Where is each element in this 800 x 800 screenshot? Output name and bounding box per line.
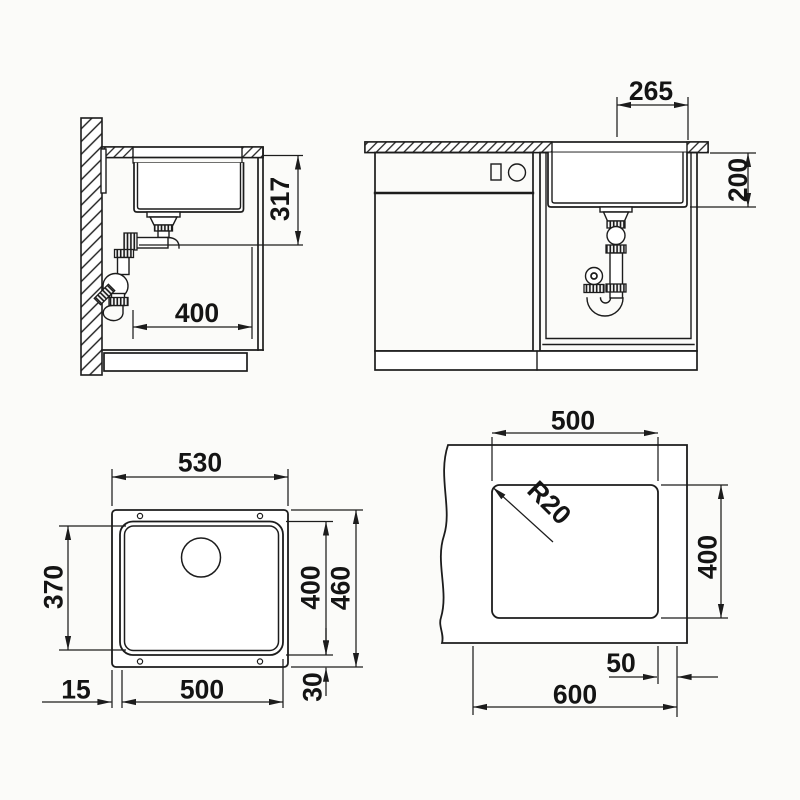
- drain-strainer: [147, 212, 180, 238]
- countertop-plan: [440, 445, 687, 643]
- dim-label-530: 530: [178, 448, 222, 478]
- dim-label-15: 15: [61, 675, 90, 705]
- dim-label-200: 200: [723, 158, 753, 202]
- dimension-15: 15: [42, 670, 122, 708]
- installation-drawing-page: 317 400: [0, 0, 800, 800]
- dim-label-500-cutout: 500: [551, 406, 595, 436]
- control-rect-icon: [491, 164, 501, 180]
- dimension-50: 50: [606, 646, 718, 717]
- dimension-400-side: 400: [133, 247, 252, 339]
- wall-batten: [101, 149, 106, 193]
- countertop-hatch-left2: [365, 142, 552, 153]
- dim-label-460: 460: [326, 566, 356, 610]
- plinth: [104, 353, 247, 371]
- p-trap: [584, 207, 632, 316]
- dim-label-400-side: 400: [175, 298, 219, 328]
- dim-label-370: 370: [39, 565, 69, 609]
- mounting-hole: [257, 513, 262, 518]
- dimension-265: 265: [617, 76, 688, 140]
- dim-label-400-plan: 400: [296, 565, 326, 609]
- view-cutout: 500 R20 400 50 600: [440, 406, 728, 718]
- sink-bowl-front: [548, 153, 687, 208]
- view-front-elevation: 265 200: [365, 76, 756, 370]
- mounting-hole: [137, 659, 142, 664]
- technical-drawing: 317 400: [0, 0, 800, 800]
- dim-label-265: 265: [629, 76, 673, 106]
- drain-pipe: [94, 233, 179, 321]
- dimension-600: 600: [473, 646, 677, 715]
- mounting-hole: [137, 513, 142, 518]
- wall-hatch: [81, 118, 102, 375]
- dim-label-50: 50: [606, 648, 635, 678]
- dimension-200: 200: [690, 153, 756, 207]
- dim-label-600: 600: [553, 680, 597, 710]
- plinth-front: [375, 351, 697, 370]
- sink-bowl-section: [134, 163, 244, 212]
- dimension-30: 30: [298, 628, 328, 702]
- countertop-hatch-right: [242, 147, 263, 158]
- dim-label-400-cutout: 400: [693, 535, 723, 579]
- left-cabinet: [375, 153, 533, 352]
- mounting-hole: [257, 659, 262, 664]
- view-side-section: 317 400: [81, 118, 303, 375]
- sink-outer-edge: [112, 510, 288, 667]
- dim-label-500-plan: 500: [180, 675, 224, 705]
- dim-label-30: 30: [298, 672, 328, 701]
- dim-label-317: 317: [265, 177, 295, 221]
- view-plan: 530 370 400 460 15 500: [39, 448, 364, 709]
- dimension-530: 530: [112, 448, 288, 507]
- countertop-hatch-right2: [687, 142, 708, 153]
- control-knob-icon: [509, 164, 526, 181]
